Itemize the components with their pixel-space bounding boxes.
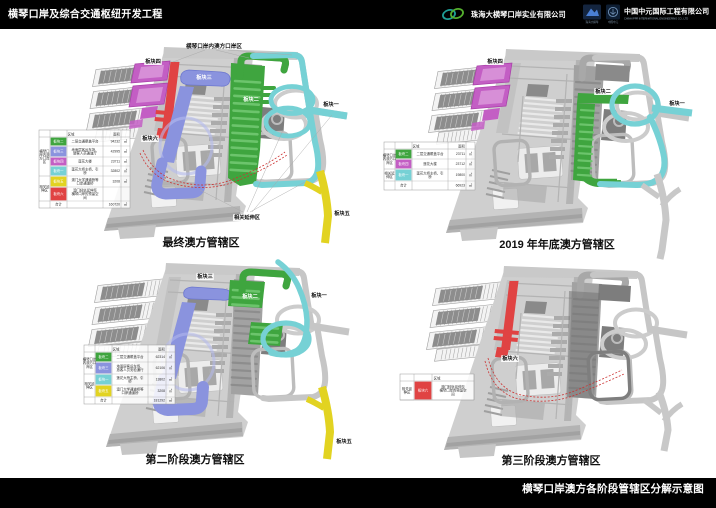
svg-text:板块二: 板块二: [398, 151, 409, 156]
svg-text:莲花大楼: 莲花大楼: [423, 161, 437, 166]
svg-text:横琴口岸及综合交通枢纽开发工程: 横琴口岸及综合交通枢纽开发工程: [8, 8, 163, 21]
svg-text:板块二: 板块二: [53, 139, 64, 144]
svg-text:板块一: 板块一: [323, 100, 339, 108]
svg-text:板块一: 板块一: [53, 168, 64, 173]
svg-text:莲花大楼: 莲花大楼: [78, 159, 92, 164]
svg-text:面积: 面积: [113, 131, 120, 136]
svg-text:横琴口岸澳方各阶段管辖区分解示意图: 横琴口岸澳方各阶段管辖区分解示意图: [522, 482, 704, 495]
svg-text:珠海大横琴口岸实业有限公司: 珠海大横琴口岸实业有限公司: [471, 10, 566, 19]
svg-text:62314: 62314: [156, 355, 166, 359]
svg-text:板块五: 板块五: [336, 437, 352, 445]
svg-text:旅客人员安检通行: 旅客人员安检通行: [116, 367, 144, 372]
svg-text:3208: 3208: [112, 180, 120, 184]
svg-text:区域: 区域: [413, 143, 420, 148]
svg-text:CHINA IPPR INTERNATIONAL ENGIN: CHINA IPPR INTERNATIONAL ENGINEERING CO.…: [624, 17, 688, 21]
svg-text:板块二: 板块二: [243, 95, 259, 103]
svg-text:32802: 32802: [111, 169, 121, 173]
svg-text:珠海大横琴: 珠海大横琴: [586, 20, 599, 24]
svg-text:最终澳方管辖区: 最终澳方管辖区: [163, 235, 240, 249]
svg-text:伸区: 伸区: [404, 390, 411, 395]
svg-text:合计: 合计: [400, 183, 407, 188]
svg-text:板块一: 板块一: [669, 99, 685, 107]
svg-text:13802: 13802: [156, 378, 166, 382]
svg-text:二层交通覆盖平台: 二层交通覆盖平台: [71, 139, 99, 144]
svg-text:岸区: 岸区: [86, 364, 93, 369]
svg-text:板块五: 板块五: [98, 388, 109, 393]
svg-text:伸区: 伸区: [86, 385, 93, 390]
svg-text:板块二: 板块二: [595, 87, 611, 95]
svg-text:板块三: 板块三: [196, 73, 212, 81]
svg-text:第三阶段澳方管辖区: 第三阶段澳方管辖区: [502, 453, 601, 467]
svg-text:旅客人员通道厅: 旅客人员通道厅: [73, 151, 97, 156]
svg-text:23711: 23711: [456, 152, 465, 156]
svg-text:板块二: 板块二: [98, 354, 109, 359]
svg-text:板块六: 板块六: [502, 354, 518, 362]
svg-text:23711: 23711: [111, 160, 120, 164]
svg-text:23712: 23712: [456, 162, 466, 166]
svg-text:板块四: 板块四: [487, 57, 503, 65]
svg-text:二层交通覆盖平台: 二层交通覆盖平台: [416, 151, 444, 156]
svg-text:42995: 42995: [111, 150, 121, 154]
svg-text:19800: 19800: [456, 173, 466, 177]
svg-text:区域: 区域: [434, 375, 441, 380]
svg-text:口岸通道桥: 口岸通道桥: [77, 181, 95, 186]
svg-text:板块六: 板块六: [53, 191, 64, 196]
svg-text:板块四: 板块四: [53, 159, 64, 164]
svg-text:伸区: 伸区: [41, 188, 48, 193]
svg-text:第二阶段澳方管辖区: 第二阶段澳方管辖区: [146, 452, 245, 466]
svg-text:伸区: 伸区: [386, 174, 393, 179]
svg-text:中国中元: 中国中元: [608, 20, 619, 24]
svg-text:板块一: 板块一: [311, 291, 327, 299]
svg-text:160720: 160720: [109, 203, 120, 207]
svg-text:66923: 66923: [456, 184, 466, 188]
svg-text:区域: 区域: [113, 346, 120, 351]
svg-text:合计: 合计: [55, 202, 62, 207]
svg-text:区域: 区域: [68, 131, 75, 136]
svg-text:合计: 合计: [100, 398, 107, 403]
svg-text:面积: 面积: [158, 346, 165, 351]
svg-text:板块二: 板块二: [242, 292, 258, 300]
svg-text:62106: 62106: [156, 366, 166, 370]
svg-text:板块四: 板块四: [398, 161, 409, 166]
svg-text:94232: 94232: [111, 140, 121, 144]
svg-text:板块三: 板块三: [197, 272, 213, 280]
svg-text:3208: 3208: [157, 389, 165, 393]
svg-text:2019 年年底澳方管辖区: 2019 年年底澳方管辖区: [499, 237, 615, 251]
svg-text:181292: 181292: [154, 399, 165, 403]
svg-text:中国中元国际工程有限公司: 中国中元国际工程有限公司: [624, 7, 709, 16]
svg-text:板块五: 板块五: [334, 209, 350, 217]
svg-text:板块六: 板块六: [418, 388, 429, 393]
svg-text:板块三: 板块三: [53, 149, 64, 154]
svg-text:板块三: 板块三: [98, 365, 109, 370]
svg-text:板块四: 板块四: [145, 57, 161, 65]
svg-text:面积: 面积: [458, 143, 465, 148]
svg-text:相关延伸区: 相关延伸区: [234, 213, 261, 221]
svg-text:岸区: 岸区: [386, 160, 393, 165]
svg-text:板块五: 板块五: [53, 179, 64, 184]
svg-text:口岸通道桥: 口岸通道桥: [122, 390, 140, 395]
svg-text:横琴口岸内澳方口岸区: 横琴口岸内澳方口岸区: [186, 42, 242, 50]
svg-text:板块六: 板块六: [142, 134, 158, 142]
svg-text:二层交通覆盖平台: 二层交通覆盖平台: [116, 354, 144, 359]
svg-text:板块一: 板块一: [98, 377, 109, 382]
svg-text:板块一: 板块一: [398, 172, 409, 177]
